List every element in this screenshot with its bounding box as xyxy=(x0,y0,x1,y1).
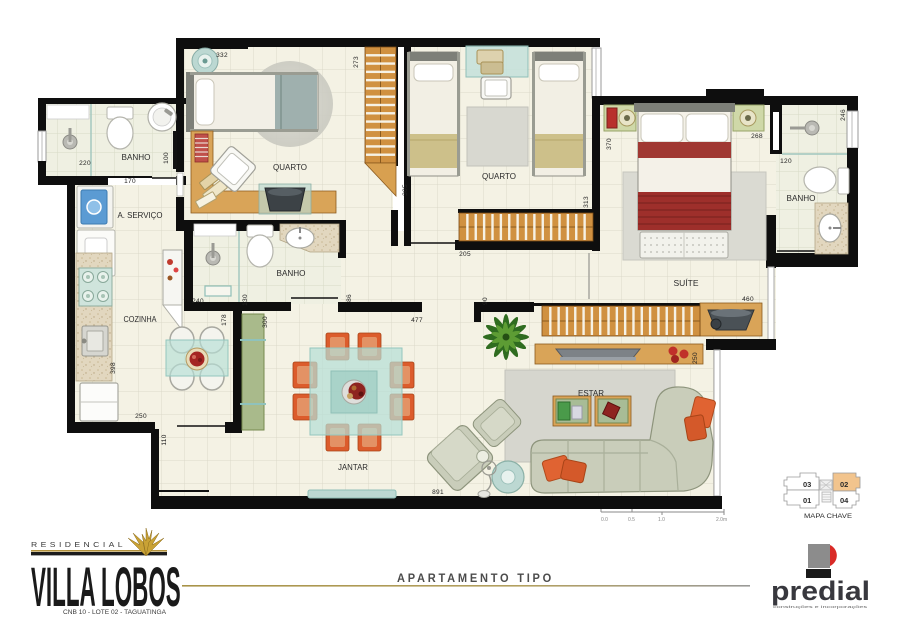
svg-text:477: 477 xyxy=(411,317,423,324)
svg-text:891: 891 xyxy=(432,489,444,496)
svg-text:01: 01 xyxy=(803,496,811,505)
svg-text:predial: predial xyxy=(771,576,870,606)
svg-text:02: 02 xyxy=(840,480,848,489)
svg-text:JANTAR: JANTAR xyxy=(338,463,368,472)
svg-text:90: 90 xyxy=(482,297,489,305)
svg-text:2.0m: 2.0m xyxy=(716,517,727,523)
svg-text:250: 250 xyxy=(135,413,147,420)
svg-text:construções e incorporações: construções e incorporações xyxy=(773,604,867,609)
svg-text:300: 300 xyxy=(262,316,269,328)
svg-text:1.0: 1.0 xyxy=(658,517,665,523)
svg-text:RESIDENCIAL: RESIDENCIAL xyxy=(31,540,126,549)
svg-text:100: 100 xyxy=(163,152,170,164)
svg-text:BANHO: BANHO xyxy=(122,153,151,162)
svg-text:MAPA CHAVE: MAPA CHAVE xyxy=(804,513,853,520)
svg-text:120: 120 xyxy=(780,158,792,165)
svg-text:370: 370 xyxy=(606,138,613,150)
svg-text:268: 268 xyxy=(751,133,763,140)
svg-text:313: 313 xyxy=(583,196,590,208)
svg-text:178: 178 xyxy=(221,314,228,326)
svg-text:398: 398 xyxy=(110,362,117,374)
svg-text:SUÍTE: SUÍTE xyxy=(674,279,699,288)
svg-text:130: 130 xyxy=(242,294,249,306)
svg-text:QUARTO: QUARTO xyxy=(273,163,307,172)
svg-text:0.0: 0.0 xyxy=(601,517,608,523)
svg-text:305: 305 xyxy=(402,184,409,196)
svg-text:460: 460 xyxy=(742,296,754,303)
svg-text:BANHO: BANHO xyxy=(787,194,816,203)
svg-text:86: 86 xyxy=(346,294,353,302)
svg-text:250: 250 xyxy=(692,352,699,364)
svg-text:CNB 10 - LOTE 02 - TAGUATINGA: CNB 10 - LOTE 02 - TAGUATINGA xyxy=(63,610,166,616)
svg-text:APARTAMENTO TIPO: APARTAMENTO TIPO xyxy=(397,571,554,585)
svg-text:0.5: 0.5 xyxy=(628,517,635,523)
svg-text:04: 04 xyxy=(840,496,849,505)
svg-text:ESTAR: ESTAR xyxy=(578,389,604,398)
svg-text:COZINHA: COZINHA xyxy=(124,315,158,324)
svg-text:240: 240 xyxy=(192,298,204,305)
svg-text:03: 03 xyxy=(803,480,811,489)
svg-text:220: 220 xyxy=(79,160,91,167)
svg-text:QUARTO: QUARTO xyxy=(482,172,516,181)
svg-text:205: 205 xyxy=(459,251,471,258)
svg-text:246: 246 xyxy=(840,109,847,121)
svg-text:170: 170 xyxy=(124,178,136,185)
svg-text:A. SERVIÇO: A. SERVIÇO xyxy=(118,211,163,220)
svg-text:BANHO: BANHO xyxy=(277,269,306,278)
svg-text:273: 273 xyxy=(353,56,360,68)
svg-text:110: 110 xyxy=(161,434,168,445)
svg-text:332: 332 xyxy=(216,52,228,59)
